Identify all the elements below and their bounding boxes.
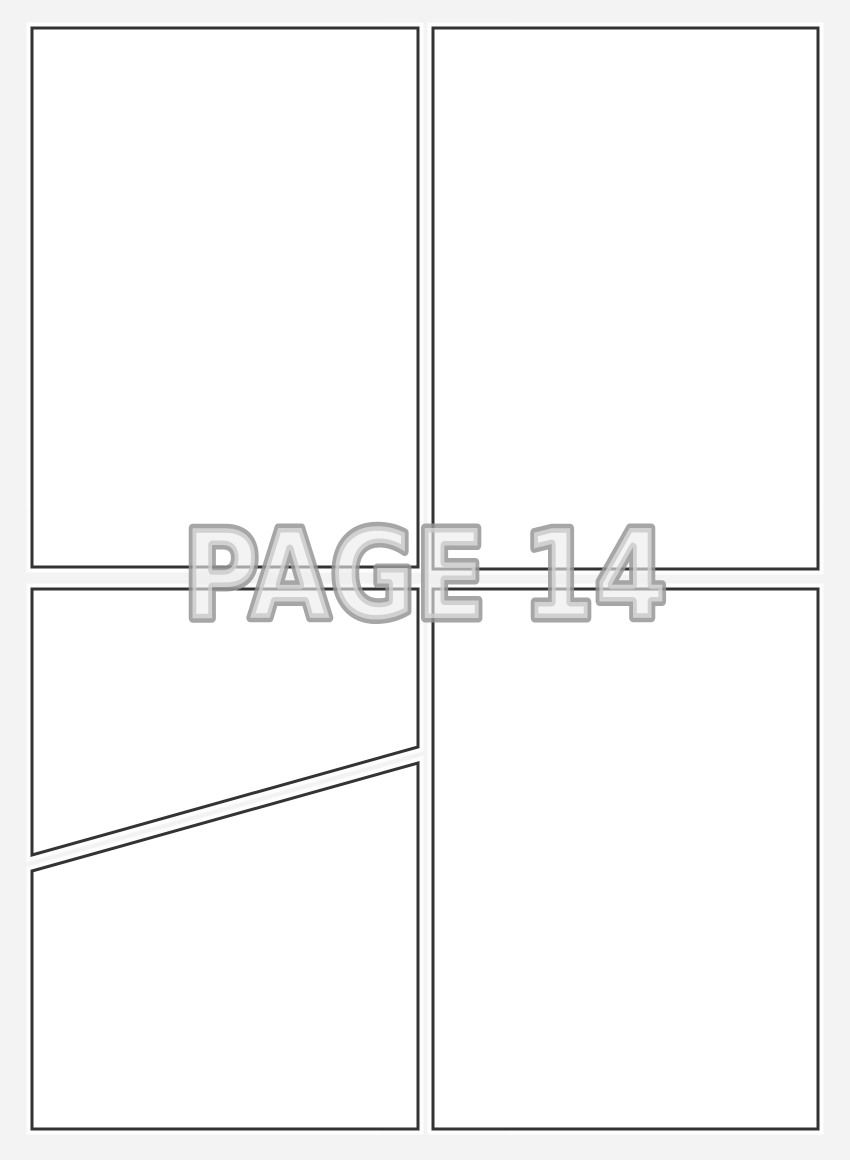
panel-bottom-right — [433, 589, 818, 1129]
panel-top-left — [32, 28, 418, 567]
page-number-label: PAGE 14 — [183, 505, 667, 648]
comic-page-template: PAGE 14 — [0, 0, 850, 1160]
comic-page-canvas: PAGE 14 — [0, 0, 850, 1160]
panel-top-right — [433, 28, 818, 569]
